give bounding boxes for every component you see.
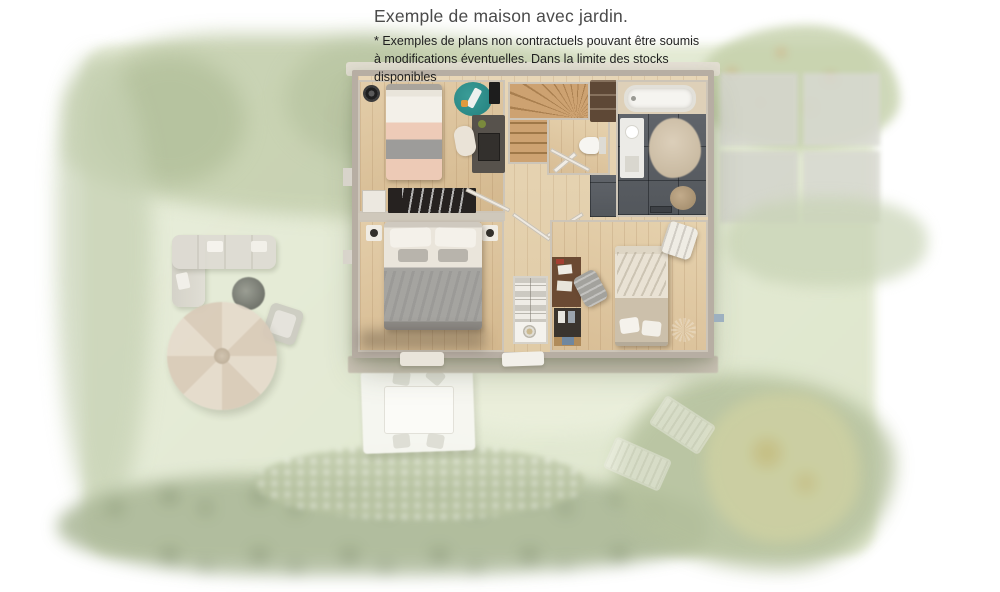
staircase-winder [508,82,590,120]
cushion [438,249,468,262]
dresser-white [362,190,386,213]
papers [558,264,573,274]
window-sill-right-blue [714,314,724,322]
pillow [435,227,477,247]
desk-lamp [478,120,486,128]
bedroom3 [550,220,708,352]
page-title: Exemple de maison avec jardin. [374,6,734,27]
papers [557,280,573,291]
bedroom1 [358,80,505,213]
autumn-tree [705,393,860,543]
dining-chair [392,433,410,449]
blue-box [562,337,574,345]
dining-chair [426,433,445,450]
vanity-unit [620,118,644,178]
bathtub-faucet [631,96,636,101]
knit-pouf [671,318,696,342]
window-sill-left [343,168,352,186]
pillow [390,227,432,247]
pillow [619,317,640,334]
fluffy-rug [649,118,701,178]
toilet-tank [599,137,606,154]
clothes-item [558,311,565,323]
laptop [478,133,500,161]
nightstand [482,225,498,241]
flower-bed [255,445,585,520]
desk [472,115,505,173]
lamp [370,229,378,237]
floor-plan [352,70,714,358]
disclaimer: * Exemples de plans non contractuels pou… [374,32,734,86]
floor-drain [650,206,672,213]
bathtub [624,85,696,112]
sofa-throw-pillow [207,241,223,252]
clothes-rack [554,308,581,346]
door-mat [502,351,544,366]
window-sill-left [343,250,352,264]
single-bed [386,84,442,180]
wardrobe [388,188,476,213]
double-bed [384,222,482,330]
bushes-right [727,197,927,287]
toilet [579,137,599,154]
master-bedroom [358,220,504,352]
disclaimer-line2: à modifications éventuelles. Dans la lim… [374,50,734,86]
sink [625,125,639,139]
sofa-throw-pillow [251,241,267,252]
cushion [398,249,428,262]
bathroom [616,80,708,217]
red-book [556,259,564,264]
towel [625,156,639,172]
parasol-pole [214,348,230,364]
screenshot-canvas: Exemple de maison avec jardin. * Exemple… [0,0,1000,592]
speaker [363,85,380,102]
door-mat [400,352,444,366]
lamp [486,229,494,237]
nightstand [366,225,382,241]
parasol [167,302,277,410]
teal-rug [454,82,492,116]
dining-table [384,386,454,434]
paver-slab [803,73,881,146]
tile-extension [590,175,616,217]
bed-bedroom3 [615,246,668,346]
header-block: Exemple de maison avec jardin. * Exemple… [374,6,734,86]
pillow [641,320,661,337]
bath-pouf [670,186,696,210]
clothes-item [568,311,575,323]
blanket-texture [384,271,482,322]
washing-machine [515,322,546,342]
rug-item [466,87,482,108]
rumpled-duvet [617,252,666,296]
rug-item-orange [461,100,468,107]
disclaimer-line1: * Exemples de plans non contractuels pou… [374,32,734,50]
washer-door [523,325,536,338]
floor-shadow [360,330,485,350]
linen-closet [513,276,548,344]
